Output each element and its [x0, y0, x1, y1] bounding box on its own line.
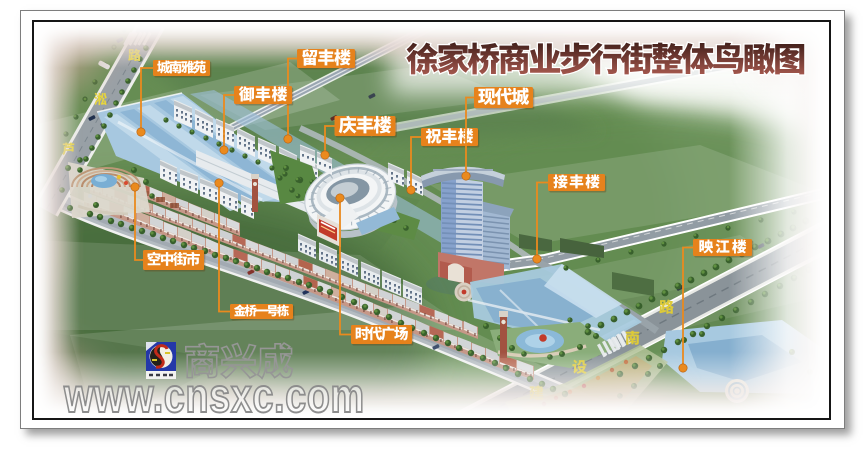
svg-text:www.cnsxc.com: www.cnsxc.com	[63, 370, 365, 423]
